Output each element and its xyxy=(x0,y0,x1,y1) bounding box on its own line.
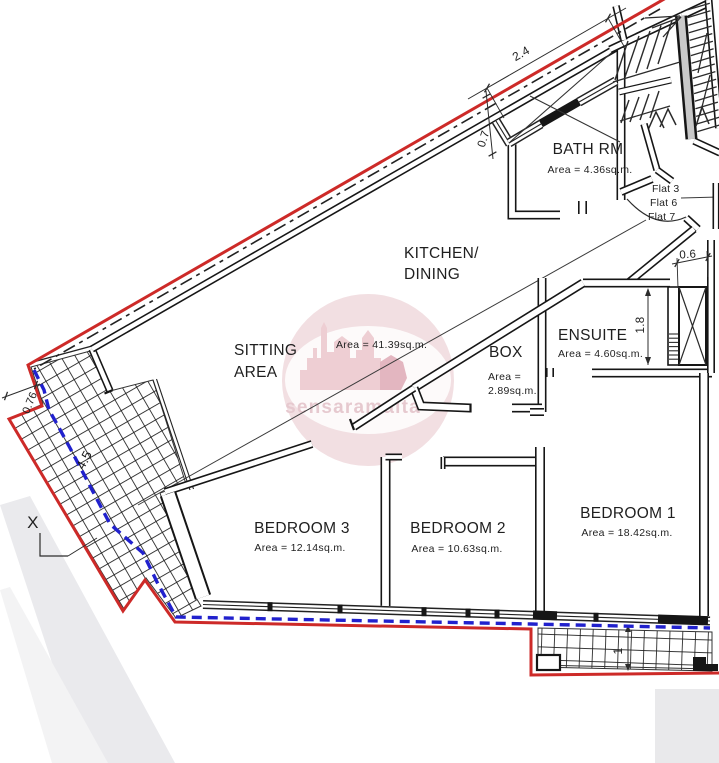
svg-text:Area = 10.63sq.m.: Area = 10.63sq.m. xyxy=(411,543,502,555)
svg-text:1: 1 xyxy=(611,647,625,654)
svg-text:KITCHEN/: KITCHEN/ xyxy=(404,245,479,262)
svg-text:0.6: 0.6 xyxy=(679,248,697,261)
svg-text:Area = 18.42sq.m.: Area = 18.42sq.m. xyxy=(581,527,672,539)
svg-text:Area = 12.14sq.m.: Area = 12.14sq.m. xyxy=(254,542,345,554)
svg-text:Flat 6: Flat 6 xyxy=(650,197,677,209)
svg-text:Flat 3: Flat 3 xyxy=(652,183,679,195)
svg-text:1.8: 1.8 xyxy=(635,317,647,334)
svg-text:BEDROOM 2: BEDROOM 2 xyxy=(410,520,506,537)
svg-text:BEDROOM 3: BEDROOM 3 xyxy=(254,520,350,537)
svg-text:Area = 41.39sq.m.: Area = 41.39sq.m. xyxy=(336,339,427,351)
svg-text:Area =: Area = xyxy=(488,371,521,383)
svg-text:ENSUITE: ENSUITE xyxy=(558,327,627,344)
svg-text:SITTING: SITTING xyxy=(234,342,297,359)
svg-text:Area = 4.60sq.m.: Area = 4.60sq.m. xyxy=(558,348,643,360)
svg-text:Flat 7: Flat 7 xyxy=(648,211,675,223)
svg-text:BATH RM: BATH RM xyxy=(553,141,624,158)
svg-text:2.89sq.m.: 2.89sq.m. xyxy=(488,385,537,397)
svg-text:DINING: DINING xyxy=(404,266,460,283)
svg-text:BEDROOM 1: BEDROOM 1 xyxy=(580,505,676,522)
svg-text:X: X xyxy=(27,513,39,532)
svg-text:AREA: AREA xyxy=(234,364,278,381)
svg-text:Area = 4.36sq.m.: Area = 4.36sq.m. xyxy=(547,164,632,176)
svg-text:BOX: BOX xyxy=(489,344,523,361)
